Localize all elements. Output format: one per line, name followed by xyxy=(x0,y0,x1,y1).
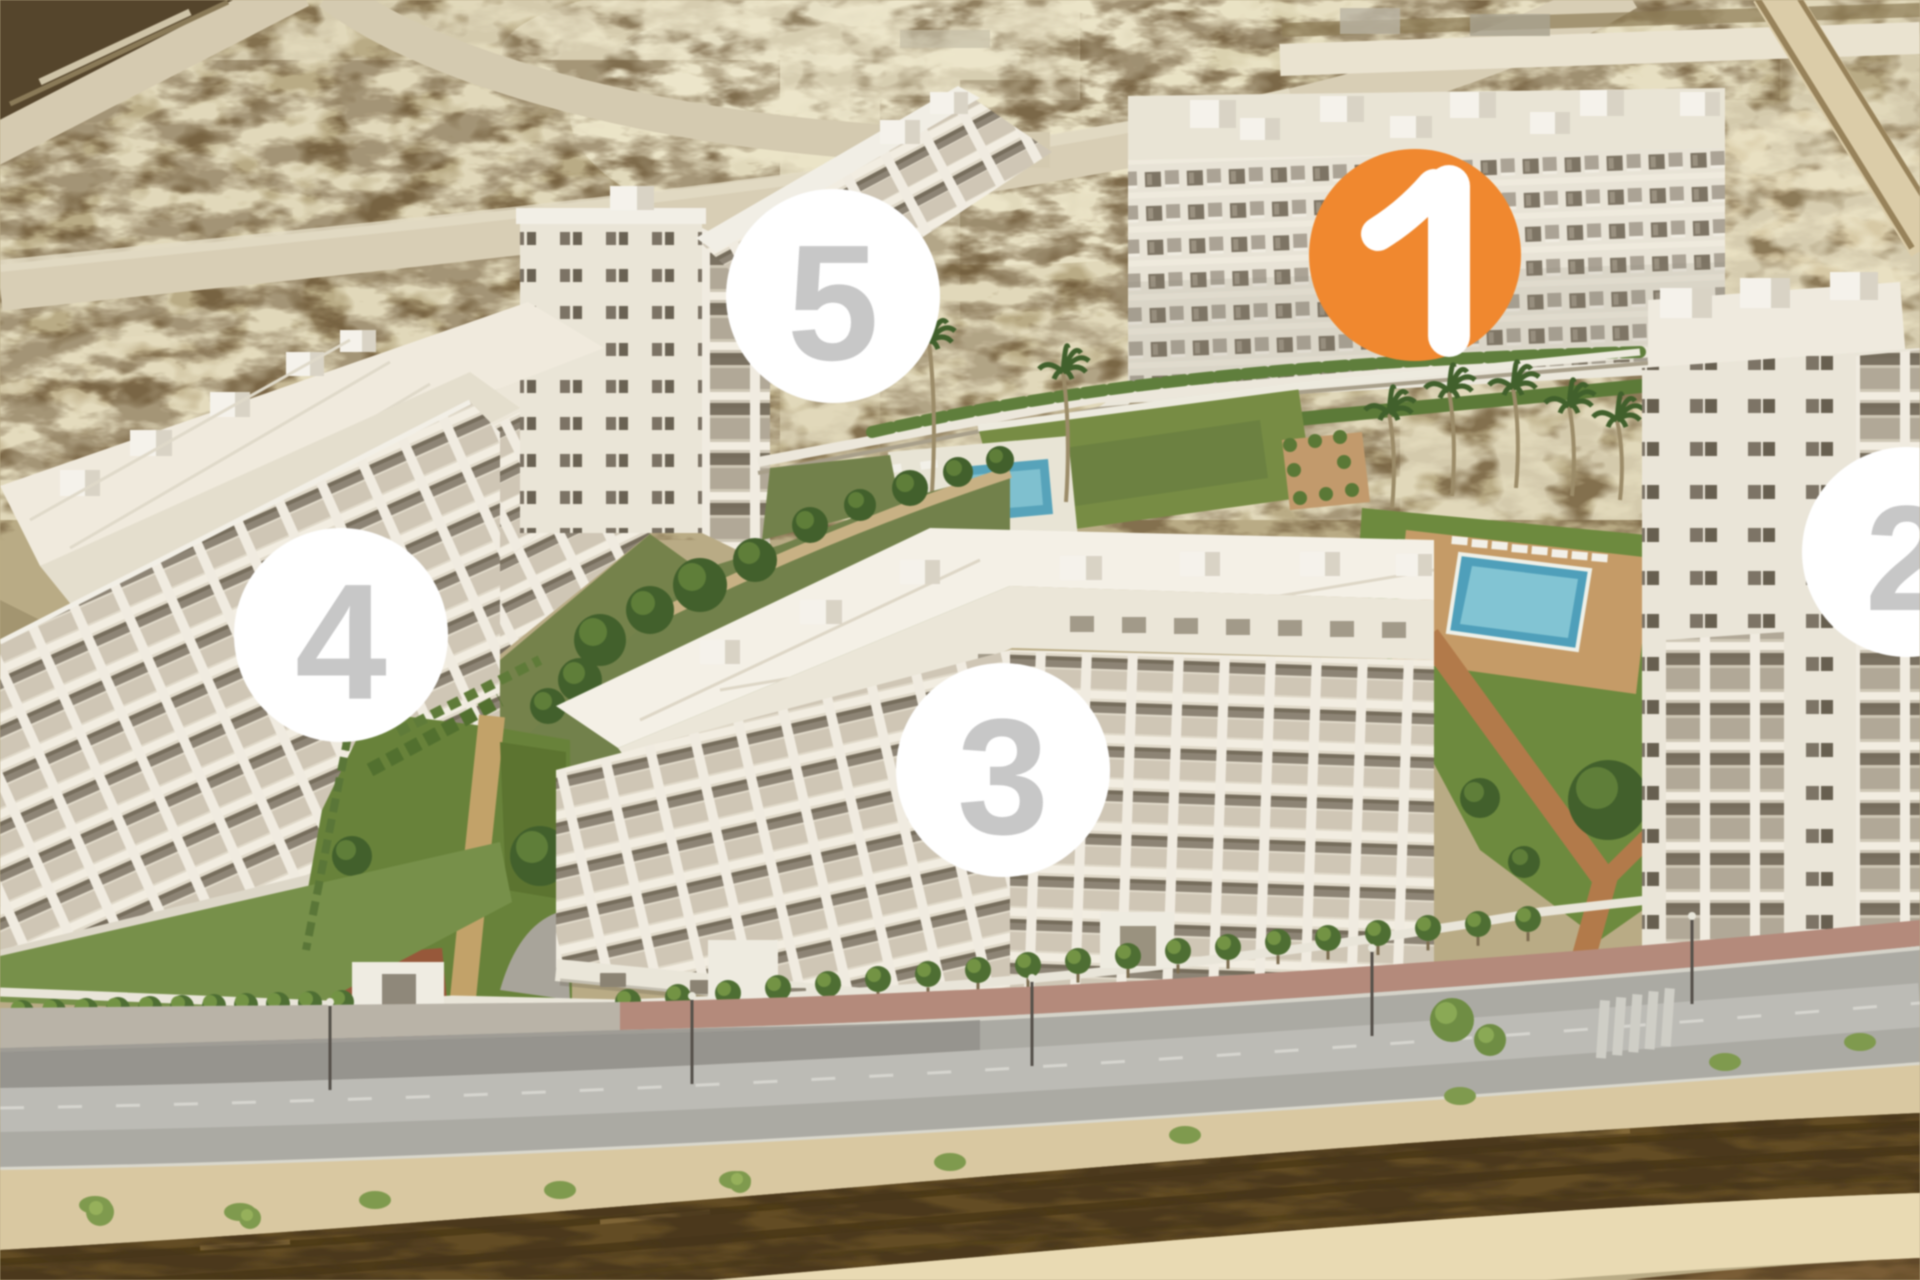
svg-text:2: 2 xyxy=(1865,474,1920,642)
svg-text:3: 3 xyxy=(957,685,1049,869)
svg-text:4: 4 xyxy=(295,550,387,734)
svg-text:5: 5 xyxy=(787,211,879,395)
